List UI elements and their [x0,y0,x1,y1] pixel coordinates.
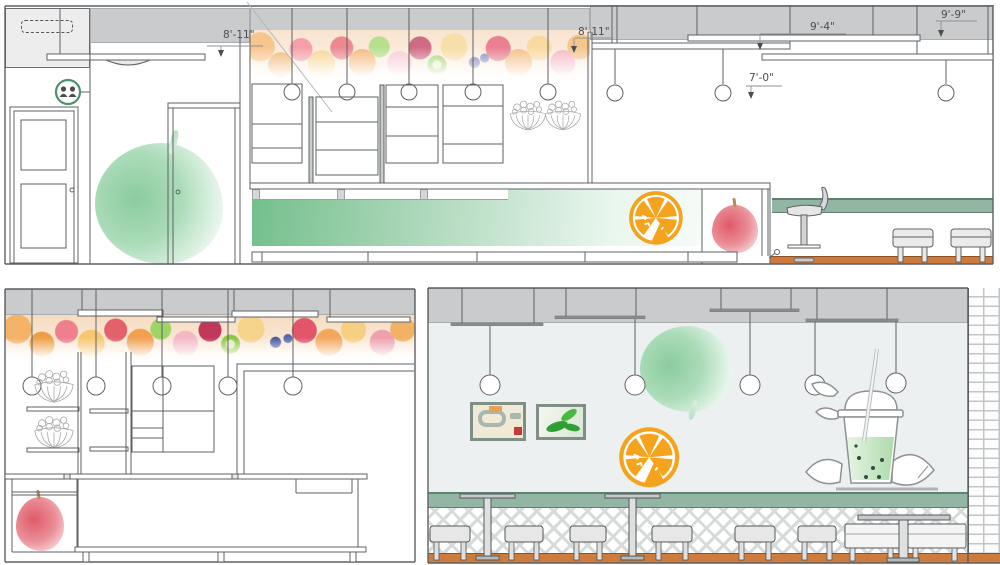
restroom-sign-icon [56,80,90,104]
counter-top [250,183,770,189]
dimension-label-ceiling-mid: 9'-4" [810,21,835,33]
back-doorway [168,103,240,264]
linework-layer [0,0,1000,565]
elevation-back-bar [5,289,415,562]
restroom-door [10,107,78,263]
smoothie-cup-mural [806,349,938,489]
ceiling-panels-b [78,290,410,322]
wall-cabinet [132,366,214,452]
fruit-basket-art [510,101,580,130]
counter-kick [252,252,737,262]
front-counter-b [5,474,367,562]
elevation-dining-wall [428,288,1000,563]
ceiling-mounts-c [451,288,898,326]
pendant-lamps-mid [284,8,556,100]
pendant-lamps-c [480,312,906,395]
dining-stools-section [893,229,991,262]
dimension-label-soffit-mid: 8'-11" [578,26,610,38]
pedestal-table [605,494,660,560]
elevation-sheet: 8'-11" 8'-11" 9'-4" 9'-9" 7'-0" [0,0,1000,565]
ceiling-panels-right [592,5,993,60]
orange-slice-graphic-a [629,191,683,245]
wall-corner-panel [237,364,414,474]
bar-stool [769,187,828,262]
orange-slice-graphic-c [619,427,679,487]
dimension-label-soffit-left: 8'-11" [223,29,255,41]
booth-table-benches [845,515,966,562]
elevation-top [5,2,993,264]
dimension-label-pendant-drop: 7'-0" [749,72,774,84]
dimension-label-ceiling-right: 9'-9" [941,9,966,21]
